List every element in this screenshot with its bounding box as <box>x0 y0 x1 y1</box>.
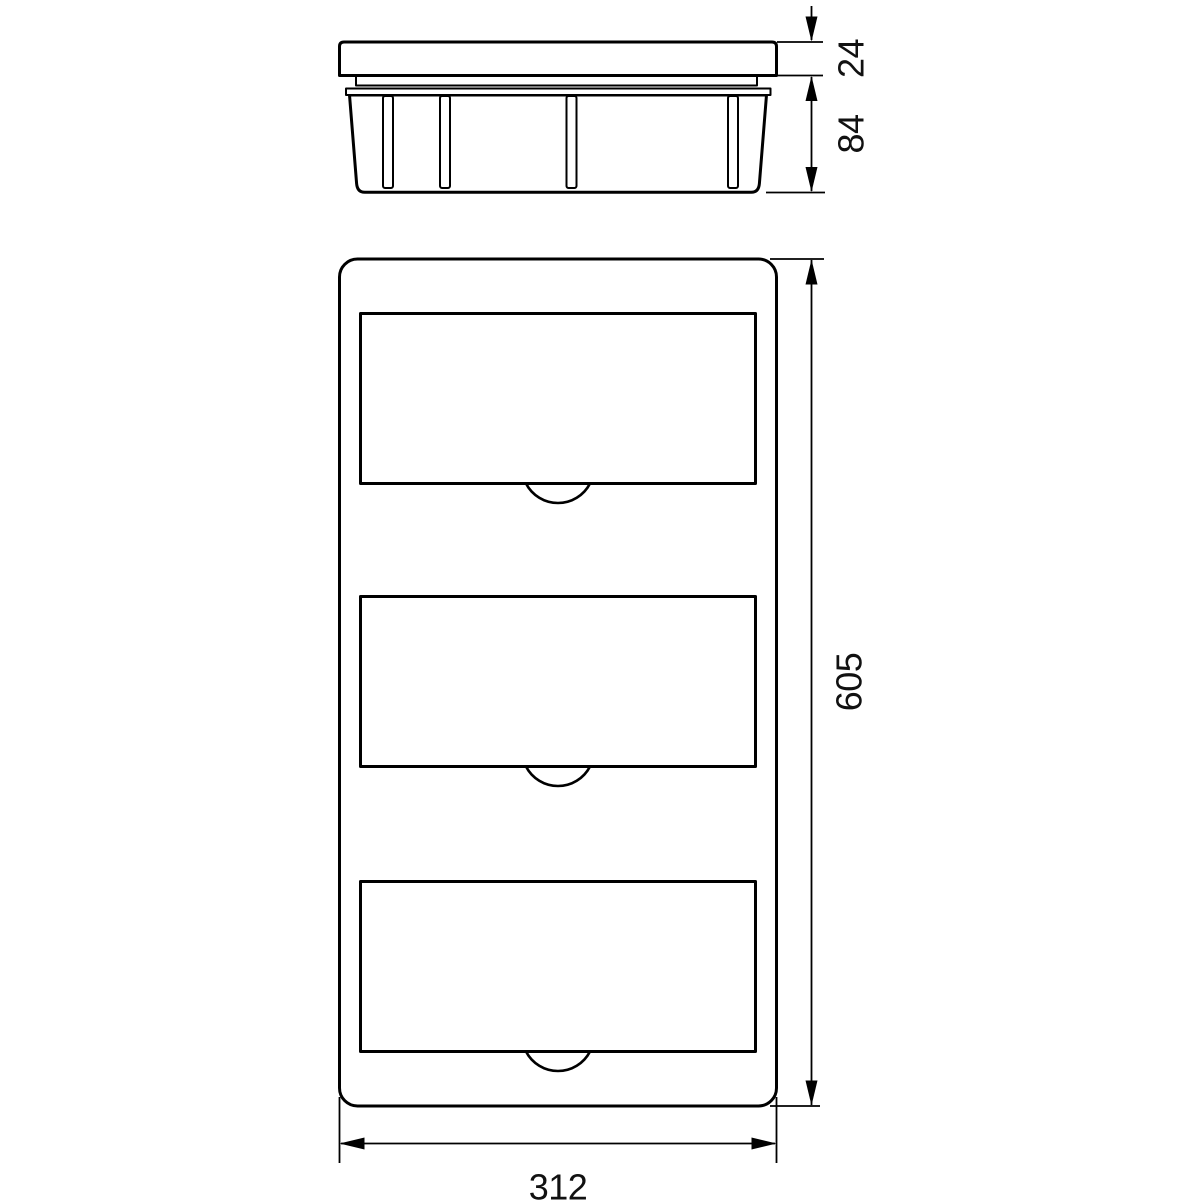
dimension-84: 84 <box>806 76 872 192</box>
arrowhead-down-icon <box>806 17 818 42</box>
dimension-605: 605 <box>806 260 870 1106</box>
rib-2 <box>440 96 450 188</box>
arrowhead-right-icon <box>752 1138 777 1150</box>
module-window-1 <box>361 314 756 484</box>
rib-1 <box>383 96 393 188</box>
side-profile-view <box>340 42 777 192</box>
rib-4 <box>728 96 738 188</box>
arrowhead-down-icon <box>806 167 818 192</box>
dim-label-84: 84 <box>831 114 872 153</box>
arrowhead-up-icon <box>806 260 818 285</box>
mounting-flange <box>346 89 771 96</box>
box-body-profile <box>350 95 767 192</box>
drawing-canvas: 24 84 605 312 <box>0 0 1200 1200</box>
dim-label-24: 24 <box>831 39 872 78</box>
arrowhead-left-icon <box>340 1138 365 1150</box>
cover-lid-profile <box>340 42 777 76</box>
module-window-3 <box>361 882 756 1052</box>
rib-3 <box>567 96 577 188</box>
module-window-2 <box>361 597 756 767</box>
dimension-312: 312 <box>340 1138 777 1200</box>
front-view <box>340 259 777 1106</box>
arrowhead-up-icon <box>806 76 818 101</box>
dim-label-605: 605 <box>829 653 870 712</box>
dimension-drawing: 24 84 605 312 <box>0 0 1200 1200</box>
dim-label-312: 312 <box>529 1167 588 1200</box>
arrowhead-down-icon <box>806 1081 818 1106</box>
